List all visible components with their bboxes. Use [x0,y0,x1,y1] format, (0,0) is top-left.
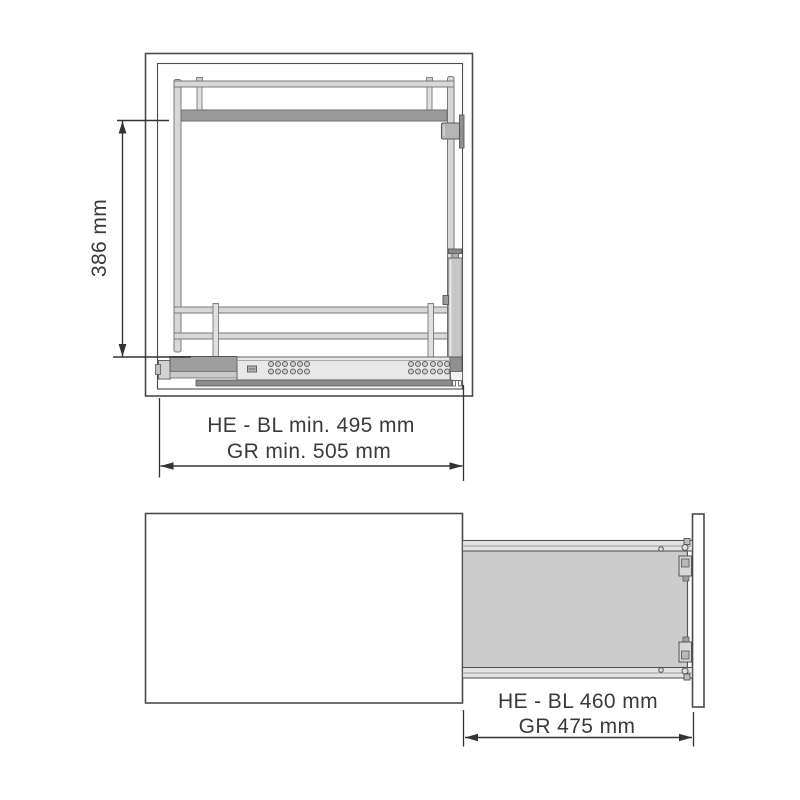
dim-plan-arrow-right [679,734,692,742]
dimension-plan-width: HE - BL 460 mm GR 475 mm [464,690,694,747]
shelf-bar [181,110,447,121]
door-panel [146,514,463,704]
clip-bottom-hook [683,637,689,642]
lower-post-right [428,304,434,359]
dim-plan-arrow-left [465,734,478,742]
top-post-right [427,87,432,111]
damper-bracket-tooth-right [459,381,462,387]
runner-dark-block [170,357,237,372]
dim-front-arrow-right [450,462,463,470]
drawer-runner [156,357,453,387]
cabinet-side-wall [693,514,705,707]
cabinet-carcass [146,54,473,397]
tray-body [463,546,688,674]
damper-bracket-tooth-left [453,381,456,387]
clip-bottom-inner [682,651,690,659]
damper-cap-bar [449,249,462,254]
wall-bracket-plate [460,115,465,148]
clip-top-hook [683,576,689,581]
damper-lower-bracket [451,372,463,381]
technical-drawing: 386 mm HE - BL min. 495 mm GR min. 505 m… [0,0,800,800]
dim-height-label: 386 mm [88,199,111,277]
runner-front-hook-step [156,365,161,375]
dimension-front-width: HE - BL min. 495 mm GR min. 505 mm [160,385,464,481]
dim-plan-body-label: GR 475 mm [519,715,636,738]
dim-front-body-label: GR min. 505 mm [227,440,391,463]
lower-post-left [213,304,219,359]
tray-screw [682,545,688,551]
runner-block-lower [170,372,237,379]
top-rail [174,81,454,87]
front-section-view: 386 mm HE - BL min. 495 mm GR min. 505 m… [88,54,473,482]
tray-screw [682,668,688,674]
runner-bottom-strip [196,380,452,386]
pullout-tray [463,539,693,681]
plan-view: HE - BL 460 mm GR 475 mm [146,514,705,747]
dim-height-arrow-down [119,344,127,357]
tray-screw [659,668,664,673]
clip-top-tab [684,539,690,545]
top-post-left [197,87,202,111]
dim-plan-runner-label: HE - BL 460 mm [498,690,658,713]
dim-front-runner-label: HE - BL min. 495 mm [207,414,415,437]
drawing-canvas: 386 mm HE - BL min. 495 mm GR min. 505 m… [0,0,800,800]
clip-top-inner [682,559,690,567]
dim-height-arrow-up [119,121,127,134]
damper-knob [443,296,449,305]
dim-front-arrow-left [161,462,174,470]
tray-screw [659,547,664,552]
clip-bottom-tab [684,674,690,680]
